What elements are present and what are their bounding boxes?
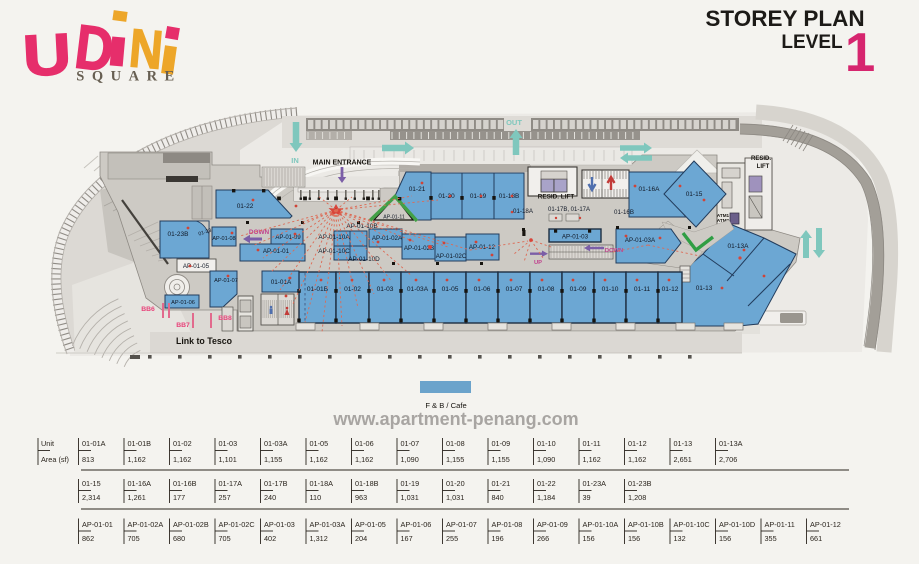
svg-text:AP-01-02C: AP-01-02C: [436, 253, 467, 260]
svg-text:2,314: 2,314: [82, 493, 100, 502]
svg-text:1,031: 1,031: [446, 493, 464, 502]
svg-text:BB7: BB7: [176, 322, 190, 329]
svg-text:240: 240: [264, 493, 276, 502]
svg-text:AP-01-10C: AP-01-10C: [674, 520, 710, 529]
svg-text:01-13: 01-13: [674, 439, 693, 448]
svg-text:402: 402: [264, 534, 276, 543]
svg-text:01-09: 01-09: [492, 439, 511, 448]
svg-text:355: 355: [765, 534, 777, 543]
svg-text:LIFT: LIFT: [757, 164, 770, 170]
svg-text:RESID.: RESID.: [751, 156, 771, 162]
svg-text:AP-01-06: AP-01-06: [401, 520, 432, 529]
svg-text:01-22: 01-22: [537, 479, 556, 488]
svg-text:01-12: 01-12: [628, 439, 647, 448]
svg-text:2,651: 2,651: [674, 455, 692, 464]
svg-text:01-20: 01-20: [438, 193, 455, 200]
svg-text:1,162: 1,162: [628, 455, 646, 464]
svg-text:AP-01-03: AP-01-03: [562, 234, 589, 241]
svg-text:1,312: 1,312: [310, 534, 328, 543]
svg-text:204: 204: [355, 534, 367, 543]
svg-text:01-01A: 01-01A: [82, 439, 106, 448]
svg-text:01-10: 01-10: [602, 286, 619, 293]
svg-text:01-03A: 01-03A: [264, 439, 288, 448]
svg-text:01-01A: 01-01A: [271, 279, 292, 286]
svg-text:01-13: 01-13: [696, 285, 713, 292]
svg-text:1,031: 1,031: [401, 493, 419, 502]
svg-text:01-18A: 01-18A: [513, 208, 534, 215]
svg-text:AP-01-08: AP-01-08: [492, 520, 523, 529]
svg-text:1,208: 1,208: [628, 493, 646, 502]
svg-text:01-02: 01-02: [173, 439, 192, 448]
svg-text:AP-01-03: AP-01-03: [264, 520, 295, 529]
svg-text:01-01B: 01-01B: [307, 286, 329, 293]
svg-text:AP-01-05: AP-01-05: [183, 263, 210, 270]
svg-text:01-21: 01-21: [409, 186, 426, 193]
svg-text:01-23A: 01-23A: [583, 479, 607, 488]
svg-text:1,155: 1,155: [264, 455, 282, 464]
svg-text:01-16B: 01-16B: [173, 479, 197, 488]
svg-text:257: 257: [219, 493, 231, 502]
svg-text:1,261: 1,261: [128, 493, 146, 502]
svg-text:SQUARE: SQUARE: [76, 69, 181, 85]
svg-text:01-17B: 01-17B: [264, 479, 288, 488]
svg-text:www.apartment-penang.com: www.apartment-penang.com: [332, 409, 578, 429]
svg-text:1,162: 1,162: [310, 455, 328, 464]
svg-text:01-13A: 01-13A: [728, 243, 750, 250]
svg-text:177: 177: [173, 493, 185, 502]
svg-text:AP-01-11: AP-01-11: [383, 215, 405, 221]
svg-text:01-03A: 01-03A: [407, 286, 429, 293]
svg-text:01-16A: 01-16A: [639, 186, 661, 193]
svg-text:01-20: 01-20: [446, 479, 465, 488]
svg-text:266: 266: [537, 534, 549, 543]
svg-text:156: 156: [583, 534, 595, 543]
svg-text:680: 680: [173, 534, 185, 543]
svg-text:705: 705: [128, 534, 140, 543]
svg-text:01-17B, 01-17A: 01-17B, 01-17A: [548, 207, 590, 213]
svg-text:01-06: 01-06: [474, 286, 491, 293]
svg-text:01-08: 01-08: [538, 286, 555, 293]
svg-text:156: 156: [628, 534, 640, 543]
svg-text:BB8: BB8: [218, 315, 232, 322]
svg-text:01-07: 01-07: [401, 439, 420, 448]
svg-text:DOWN: DOWN: [605, 248, 623, 254]
svg-text:BB6: BB6: [141, 306, 155, 313]
svg-text:156: 156: [719, 534, 731, 543]
svg-text:AP-01-12: AP-01-12: [810, 520, 841, 529]
svg-text:1,155: 1,155: [446, 455, 464, 464]
svg-text:705: 705: [219, 534, 231, 543]
svg-text:01-03: 01-03: [219, 439, 238, 448]
svg-text:01-18B: 01-18B: [355, 479, 379, 488]
svg-text:AP-01-11: AP-01-11: [765, 520, 795, 529]
svg-text:AP-01-10C: AP-01-10C: [318, 248, 350, 255]
svg-text:01-22: 01-22: [237, 203, 254, 210]
svg-text:01-23B: 01-23B: [628, 479, 652, 488]
svg-text:01-10: 01-10: [537, 439, 556, 448]
svg-text:AP-01-12: AP-01-12: [469, 244, 496, 251]
svg-text:IN: IN: [291, 156, 299, 165]
svg-text:01-12: 01-12: [662, 286, 679, 293]
svg-text:01-13A: 01-13A: [719, 439, 743, 448]
svg-text:1,162: 1,162: [128, 455, 146, 464]
svg-text:132: 132: [674, 534, 686, 543]
svg-text:01-18A: 01-18A: [310, 479, 334, 488]
svg-text:110: 110: [310, 493, 322, 502]
svg-text:01-06: 01-06: [355, 439, 374, 448]
svg-text:AP-01-09: AP-01-09: [275, 235, 301, 241]
svg-text:1,155: 1,155: [492, 455, 510, 464]
svg-text:AP-01-02A: AP-01-02A: [128, 520, 164, 529]
svg-text:MAIN ENTRANCE: MAIN ENTRANCE: [313, 160, 372, 167]
svg-text:1,090: 1,090: [537, 455, 555, 464]
svg-text:AP-01-02B: AP-01-02B: [173, 520, 209, 529]
svg-text:OUT: OUT: [506, 118, 522, 127]
svg-text:01-11: 01-11: [634, 286, 651, 293]
svg-text:813: 813: [82, 455, 94, 464]
svg-text:AP-01-03A: AP-01-03A: [625, 237, 656, 244]
svg-text:Link to Tesco: Link to Tesco: [176, 336, 233, 346]
svg-text:01-09: 01-09: [570, 286, 587, 293]
svg-text:255: 255: [446, 534, 458, 543]
svg-text:01-16A: 01-16A: [128, 479, 152, 488]
svg-text:AP-01-10B: AP-01-10B: [628, 520, 664, 529]
svg-text:167: 167: [401, 534, 413, 543]
svg-text:01-07: 01-07: [506, 286, 523, 293]
svg-text:01-19: 01-19: [401, 479, 420, 488]
svg-text:AP-01-01: AP-01-01: [263, 248, 290, 255]
svg-text:01-15: 01-15: [686, 191, 703, 198]
svg-text:STOREY PLAN: STOREY PLAN: [705, 6, 864, 31]
svg-text:862: 862: [82, 534, 94, 543]
svg-text:01-23B: 01-23B: [168, 231, 189, 238]
svg-text:01-05: 01-05: [442, 286, 459, 293]
svg-text:01-08: 01-08: [446, 439, 465, 448]
svg-text:AP-01-03A: AP-01-03A: [310, 520, 346, 529]
svg-text:Area (sf): Area (sf): [41, 455, 69, 464]
svg-text:U: U: [21, 22, 73, 89]
svg-text:01-16B: 01-16B: [614, 209, 634, 216]
svg-text:01-17A: 01-17A: [219, 479, 243, 488]
svg-text:AP-01-10D: AP-01-10D: [348, 256, 380, 263]
svg-text:AP-01-02A: AP-01-02A: [372, 235, 403, 242]
svg-text:Unit: Unit: [41, 439, 54, 448]
svg-text:2,706: 2,706: [719, 455, 737, 464]
svg-text:01-03: 01-03: [377, 286, 394, 293]
svg-text:AP-01-07: AP-01-07: [446, 520, 477, 529]
svg-text:01-01B: 01-01B: [128, 439, 152, 448]
svg-text:01-05: 01-05: [310, 439, 329, 448]
svg-text:661: 661: [810, 534, 822, 543]
svg-text:39: 39: [583, 493, 591, 502]
svg-text:01-18B: 01-18B: [499, 193, 520, 200]
svg-text:AP-01-06: AP-01-06: [171, 300, 195, 306]
svg-text:1,101: 1,101: [219, 455, 237, 464]
svg-text:AP-01-07: AP-01-07: [214, 278, 238, 284]
svg-text:AP-01-01: AP-01-01: [82, 520, 113, 529]
svg-text:1: 1: [845, 21, 876, 83]
svg-text:1,162: 1,162: [583, 455, 601, 464]
svg-text:01-02: 01-02: [344, 286, 361, 293]
svg-text:AP-01-10D: AP-01-10D: [719, 520, 755, 529]
svg-text:840: 840: [492, 493, 504, 502]
svg-text:196: 196: [492, 534, 504, 543]
svg-text:1,162: 1,162: [173, 455, 191, 464]
svg-text:1,162: 1,162: [355, 455, 373, 464]
svg-text:AP-01-08: AP-01-08: [212, 236, 235, 242]
svg-text:963: 963: [355, 493, 367, 502]
svg-text:01-11: 01-11: [583, 439, 601, 448]
svg-text:AP-01-09: AP-01-09: [537, 520, 568, 529]
svg-text:1,184: 1,184: [537, 493, 555, 502]
svg-text:AP-01-10A: AP-01-10A: [583, 520, 619, 529]
svg-text:AP-01-02C: AP-01-02C: [219, 520, 255, 529]
svg-text:LEVEL: LEVEL: [781, 32, 843, 53]
svg-text:01-15: 01-15: [82, 479, 101, 488]
svg-text:01-19: 01-19: [470, 193, 487, 200]
svg-text:01-21: 01-21: [492, 479, 511, 488]
svg-text:AP-01-05: AP-01-05: [355, 520, 386, 529]
svg-text:RESID. LIFT: RESID. LIFT: [538, 194, 575, 201]
svg-text:1,090: 1,090: [401, 455, 419, 464]
svg-text:UP: UP: [534, 260, 542, 266]
